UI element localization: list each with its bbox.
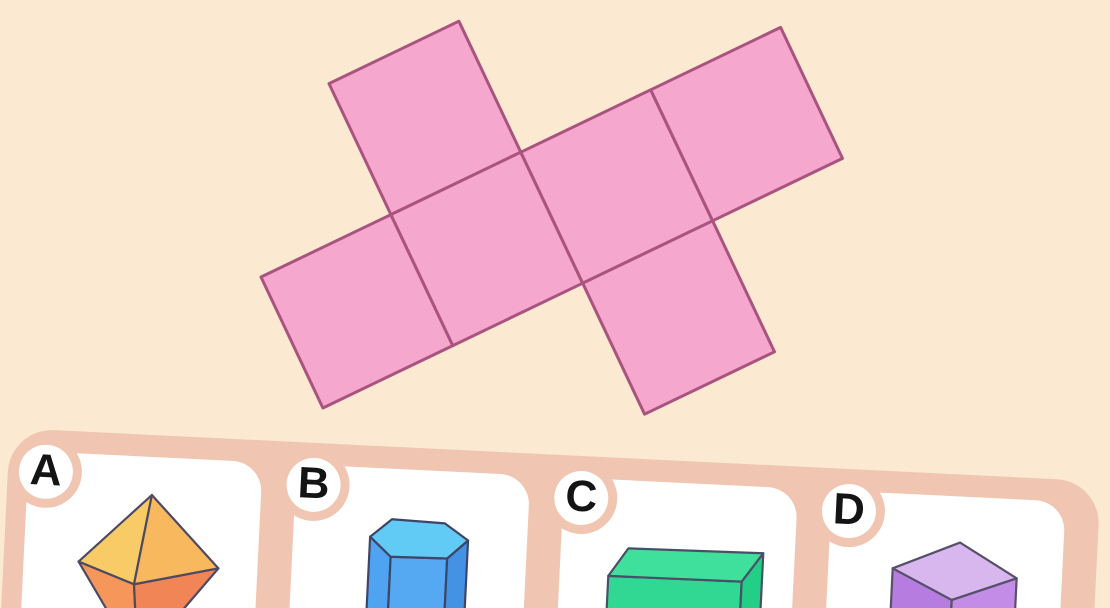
rectangular-prism-face <box>608 546 763 584</box>
hexagonal-prism-face <box>383 556 447 608</box>
answer-card-A[interactable]: A <box>13 451 263 608</box>
answer-card-C[interactable]: C <box>548 477 798 608</box>
option-label: A <box>29 448 63 494</box>
puzzle-stage: ABCD <box>0 0 1110 608</box>
option-label: B <box>297 461 331 507</box>
answer-card-B[interactable]: B <box>280 464 530 608</box>
option-label: C <box>564 474 598 519</box>
answer-card-D[interactable]: D <box>816 490 1066 608</box>
option-label: D <box>832 487 866 532</box>
